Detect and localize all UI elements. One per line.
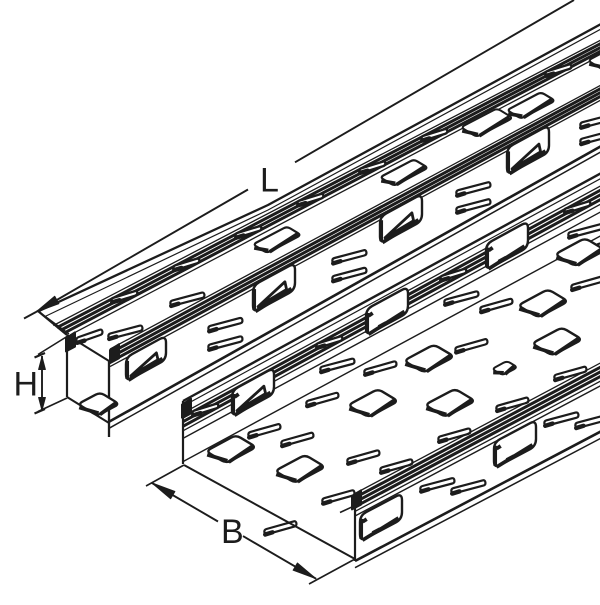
svg-text:L: L: [260, 162, 279, 200]
svg-text:H: H: [14, 366, 39, 404]
svg-text:B: B: [221, 513, 244, 551]
